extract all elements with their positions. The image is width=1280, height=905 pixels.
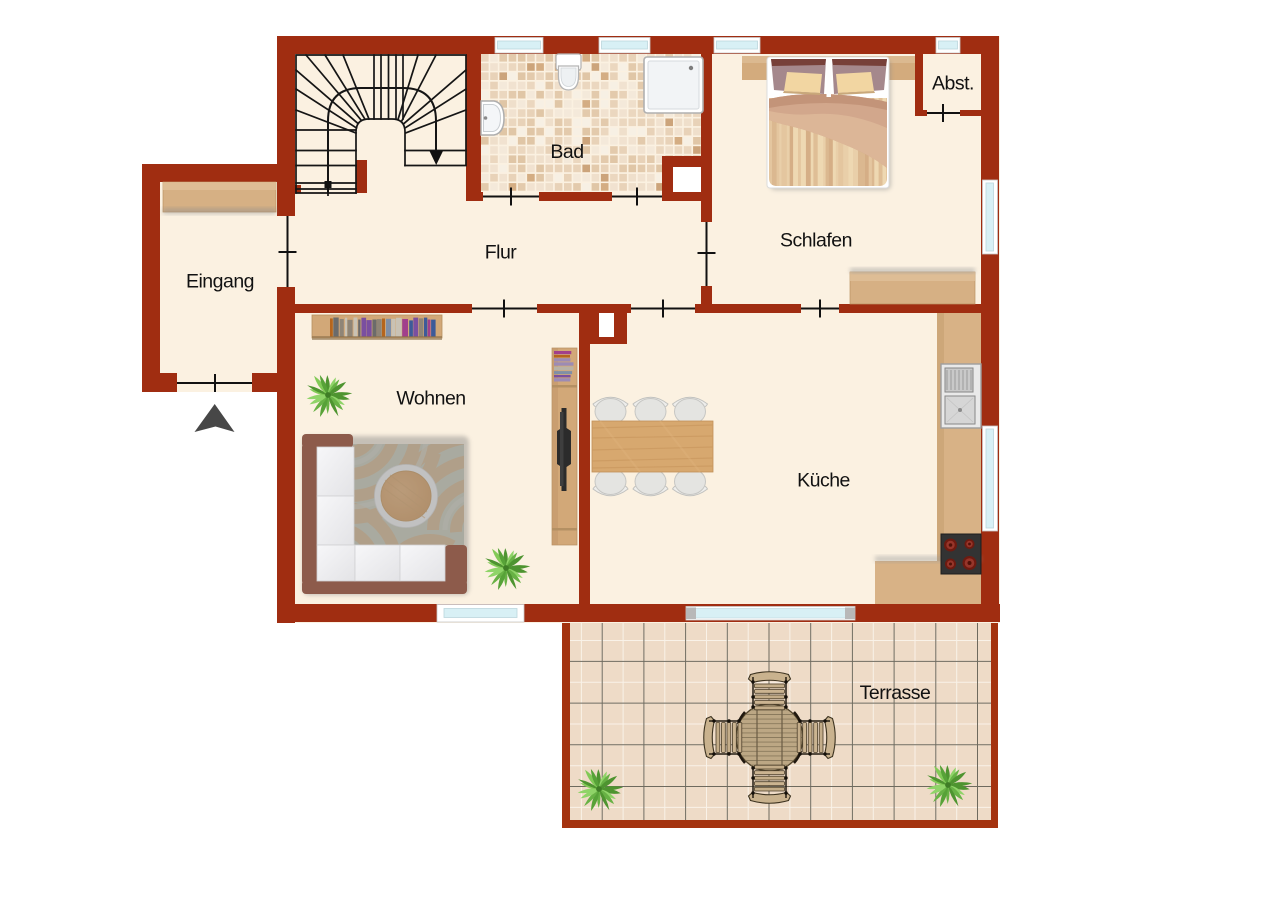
svg-text:Terrasse: Terrasse — [860, 682, 931, 704]
svg-text:Flur: Flur — [485, 242, 518, 264]
svg-text:Abst.: Abst. — [932, 73, 974, 95]
svg-text:Küche: Küche — [797, 470, 850, 492]
svg-text:Schlafen: Schlafen — [780, 230, 852, 252]
svg-text:Bad: Bad — [550, 141, 583, 163]
svg-text:Wohnen: Wohnen — [396, 388, 465, 410]
svg-text:Eingang: Eingang — [186, 271, 254, 293]
